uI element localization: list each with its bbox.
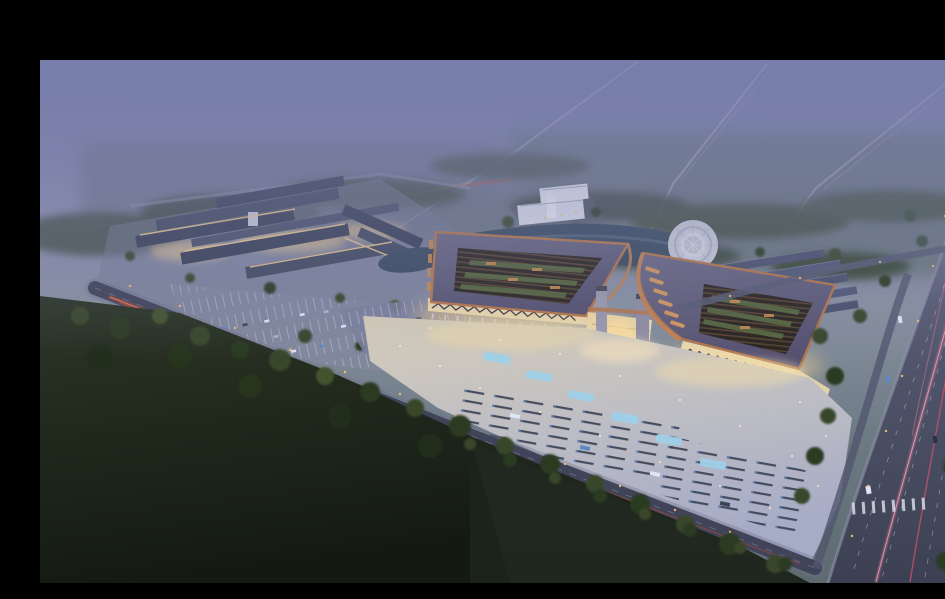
letterbox-top-bar xyxy=(40,16,945,60)
aerial-rendering: Aerial dusk rendering of a market hall c… xyxy=(40,16,945,583)
fog-veil xyxy=(40,60,945,360)
rendering-viewport: Aerial dusk rendering of a market hall c… xyxy=(40,16,945,583)
